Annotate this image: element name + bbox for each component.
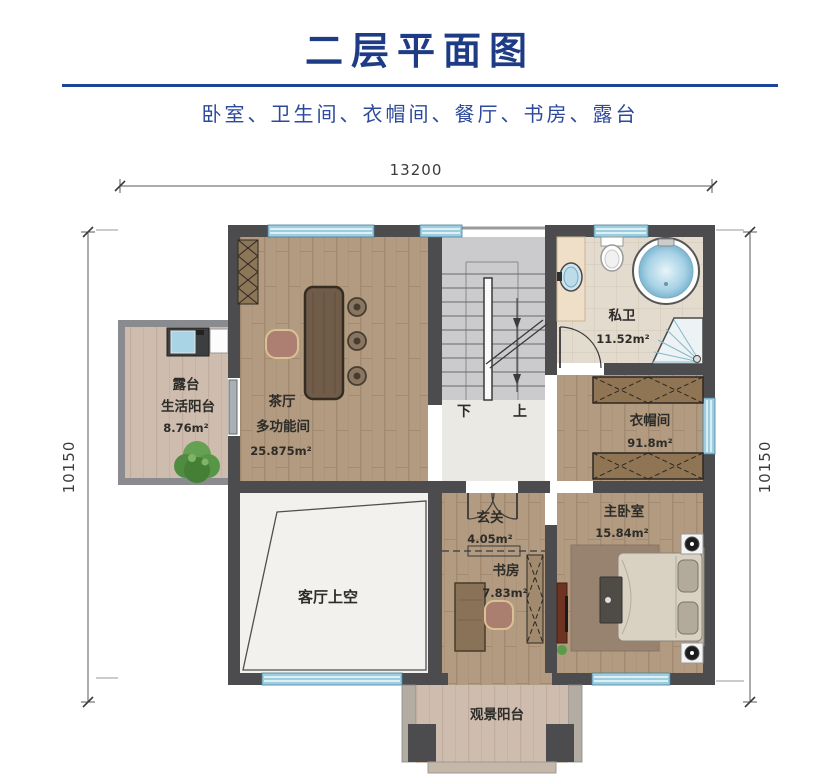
- tea-chair: [266, 330, 298, 358]
- window: [703, 398, 715, 454]
- window: [262, 673, 402, 685]
- toilet: [601, 237, 623, 271]
- stairs-up-label: 上: [513, 404, 527, 420]
- living-void-label: 客厅上空: [297, 588, 358, 606]
- wall-tea-stairs: [428, 237, 442, 405]
- pillar: [408, 724, 436, 762]
- stairs-down-label: 下: [457, 404, 471, 420]
- bathtub: [633, 238, 699, 304]
- tea-room-area: 25.875m²: [250, 444, 311, 458]
- bedroom-area: 15.84m²: [595, 526, 648, 540]
- stool: [348, 332, 366, 350]
- dimension-right: 10150: [716, 227, 774, 707]
- dimension-right-label: 10150: [756, 441, 774, 494]
- desk-chair: [485, 601, 513, 629]
- window: [268, 225, 374, 237]
- balcony-label: 观景阳台: [470, 706, 524, 723]
- tea-table: [305, 287, 343, 399]
- wall-study-bedroom: [545, 525, 557, 673]
- page-subtitle: 卧室、卫生间、衣帽间、餐厅、书房、露台: [0, 98, 840, 127]
- bedroom-label: 主卧室: [604, 503, 645, 520]
- terrace-area: 8.76m²: [163, 421, 208, 435]
- balcony-threshold: [448, 673, 552, 685]
- cloakroom-area: 91.8m²: [627, 436, 672, 450]
- stool: [348, 367, 366, 385]
- view-balcony: 观景阳台: [402, 685, 582, 773]
- hatched-column: [238, 240, 258, 304]
- floor-plan-page: 二层平面图 卧室、卫生间、衣帽间、餐厅、书房、露台: [0, 0, 840, 784]
- window: [592, 673, 670, 685]
- nightstand: [681, 534, 703, 554]
- bedroom-bench: [600, 577, 622, 623]
- stair-rail: [484, 278, 492, 400]
- dimension-left-label: 10150: [60, 441, 78, 494]
- terrace: 露台 生活阳台 8.76m²: [118, 320, 228, 485]
- stair-floor: [442, 237, 545, 400]
- bathroom-label: 私卫: [609, 307, 637, 324]
- vanity-sink: [557, 237, 585, 321]
- tea-room-sublabel: 多功能间: [256, 418, 310, 435]
- bed: [618, 548, 704, 646]
- study-label: 书房: [493, 562, 520, 579]
- dimension-top-label: 13200: [390, 161, 443, 179]
- cloakroom-label: 衣帽间: [630, 412, 671, 429]
- foyer-area: 4.05m²: [467, 532, 512, 546]
- terrace-cabinet: [210, 329, 228, 353]
- study-area: 7.83m²: [482, 586, 527, 600]
- foyer-label: 玄关: [477, 509, 504, 526]
- terrace-label: 露台: [173, 376, 200, 393]
- sliding-door: [229, 380, 237, 434]
- dimension-top: 13200: [115, 161, 717, 193]
- terrace-sublabel: 生活阳台: [161, 398, 215, 415]
- laundry-sink: [167, 328, 209, 356]
- page-title: 二层平面图: [0, 0, 840, 75]
- stool: [348, 298, 366, 316]
- wall-stairs-bath: [545, 225, 557, 375]
- desk: [455, 583, 485, 651]
- title-divider: [62, 84, 778, 87]
- window: [420, 225, 462, 237]
- balcony-floor: [416, 685, 568, 763]
- wall-living-void: [428, 493, 442, 673]
- header: 二层平面图 卧室、卫生间、衣帽间、餐厅、书房、露台: [0, 0, 840, 127]
- balcony-step: [428, 762, 556, 773]
- living-void-floor: [240, 493, 428, 673]
- window: [594, 225, 648, 237]
- nightstand: [681, 643, 703, 663]
- wardrobe: [593, 453, 703, 479]
- tea-room-label: 茶厅: [268, 393, 296, 410]
- bathroom-area: 11.52m²: [596, 332, 649, 346]
- dimension-left: 10150: [60, 227, 118, 707]
- wall-bath-cloak: [604, 363, 703, 375]
- wardrobe: [593, 377, 703, 403]
- bookshelf: [527, 555, 543, 643]
- pillar: [546, 724, 574, 762]
